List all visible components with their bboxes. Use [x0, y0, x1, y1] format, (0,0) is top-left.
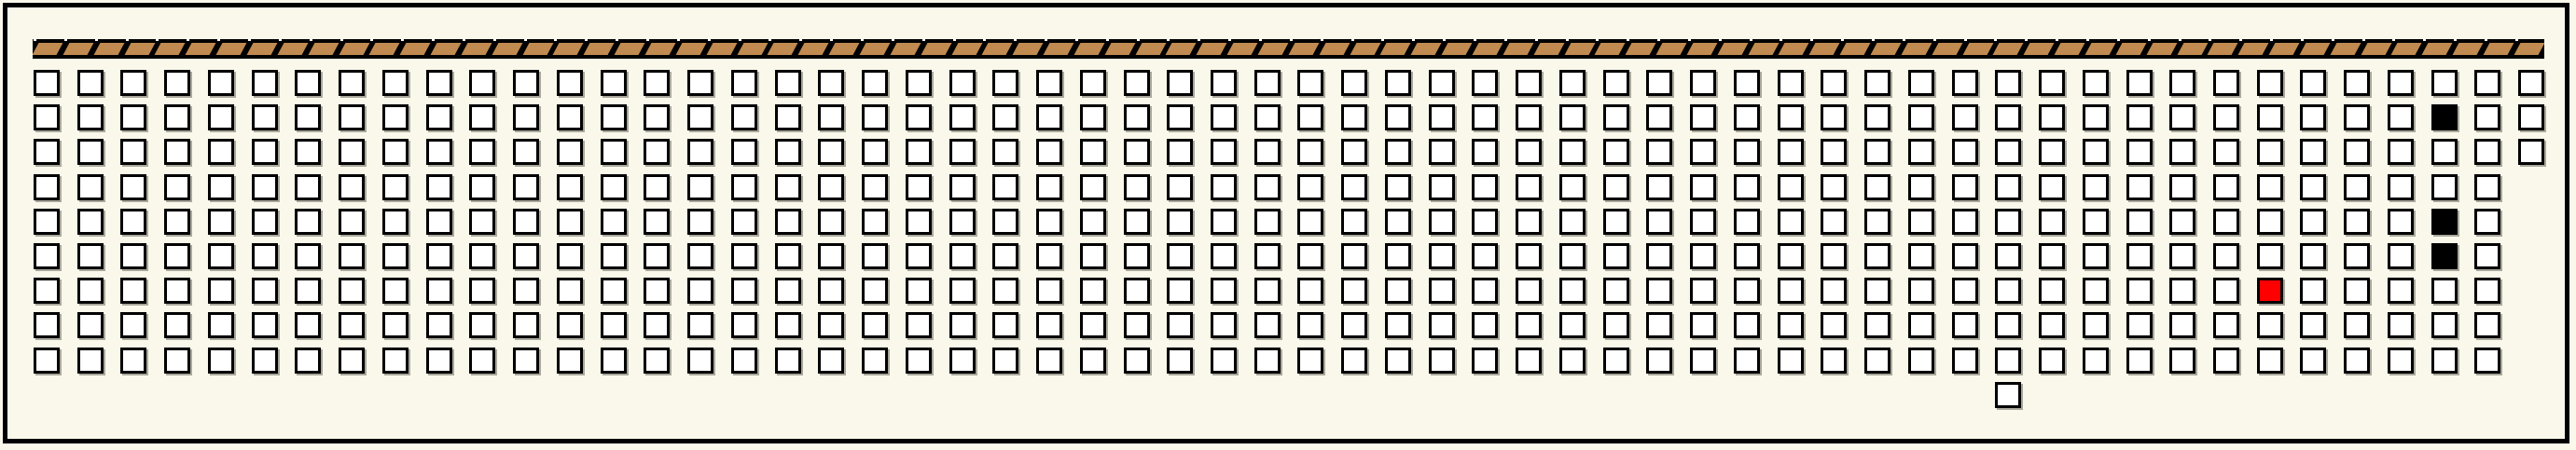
grid-cell[interactable]	[1864, 139, 1890, 165]
grid-cell[interactable]	[1995, 312, 2021, 338]
grid-cell[interactable]	[1778, 104, 1804, 130]
grid-cell[interactable]	[77, 348, 104, 374]
grid-cell[interactable]	[164, 243, 190, 269]
grid-cell[interactable]	[1603, 278, 1629, 304]
grid-cell[interactable]	[731, 104, 757, 130]
grid-cell[interactable]	[2300, 278, 2326, 304]
grid-cell[interactable]	[2300, 174, 2326, 200]
grid-cell[interactable]	[1864, 278, 1890, 304]
grid-cell[interactable]	[1036, 209, 1062, 235]
grid-cell[interactable]	[949, 312, 976, 338]
grid-cell[interactable]	[513, 348, 539, 374]
grid-cell[interactable]	[775, 209, 801, 235]
grid-cell[interactable]	[1908, 312, 1934, 338]
grid-cell[interactable]	[1603, 209, 1629, 235]
grid-cell[interactable]	[775, 104, 801, 130]
grid-cell[interactable]	[208, 243, 234, 269]
grid-cell[interactable]	[1864, 312, 1890, 338]
grid-cell[interactable]	[775, 243, 801, 269]
grid-cell[interactable]	[2083, 278, 2109, 304]
grid-cell[interactable]	[252, 174, 278, 200]
grid-cell[interactable]	[906, 70, 932, 96]
grid-cell[interactable]	[2213, 243, 2239, 269]
grid-cell[interactable]	[2474, 174, 2500, 200]
grid-cell[interactable]	[1341, 243, 1367, 269]
grid-cell[interactable]	[818, 209, 844, 235]
grid-cell[interactable]	[1559, 209, 1586, 235]
grid-cell[interactable]	[1429, 70, 1455, 96]
grid-cell[interactable]	[2213, 278, 2239, 304]
grid-cell[interactable]	[120, 278, 146, 304]
grid-cell[interactable]	[2126, 278, 2153, 304]
grid-cell[interactable]	[1908, 104, 1934, 130]
grid-cell[interactable]	[1385, 312, 1411, 338]
grid-cell[interactable]	[34, 243, 60, 269]
grid-cell[interactable]	[644, 70, 670, 96]
grid-cell[interactable]	[1603, 139, 1629, 165]
grid-cell[interactable]	[906, 243, 932, 269]
grid-cell[interactable]	[295, 104, 321, 130]
grid-cell[interactable]	[469, 70, 495, 96]
grid-cell[interactable]	[164, 104, 190, 130]
grid-cell[interactable]	[34, 209, 60, 235]
grid-cell[interactable]	[906, 278, 932, 304]
grid-cell[interactable]	[513, 312, 539, 338]
grid-cell[interactable]	[1472, 278, 1498, 304]
grid-cell[interactable]	[208, 70, 234, 96]
grid-cell[interactable]	[992, 312, 1018, 338]
grid-cell[interactable]	[992, 174, 1018, 200]
grid-cell[interactable]	[862, 348, 888, 374]
grid-cell[interactable]	[1734, 70, 1760, 96]
grid-cell[interactable]	[601, 174, 627, 200]
grid-cell[interactable]	[1124, 348, 1150, 374]
grid-cell[interactable]	[1646, 70, 1672, 96]
grid-cell[interactable]	[601, 104, 627, 130]
grid-cell[interactable]	[1036, 104, 1062, 130]
grid-cell[interactable]	[1254, 243, 1281, 269]
grid-cell[interactable]	[1603, 312, 1629, 338]
grid-cell[interactable]	[2474, 209, 2500, 235]
grid-cell[interactable]	[557, 312, 583, 338]
grid-cell[interactable]	[906, 139, 932, 165]
grid-cell[interactable]	[426, 243, 452, 269]
grid-cell[interactable]	[252, 312, 278, 338]
grid-cell[interactable]	[1690, 348, 1716, 374]
grid-cell[interactable]	[644, 348, 670, 374]
grid-cell[interactable]	[1908, 174, 1934, 200]
grid-cell[interactable]	[601, 278, 627, 304]
grid-cell[interactable]	[949, 70, 976, 96]
grid-cell[interactable]	[1297, 104, 1323, 130]
grid-cell[interactable]	[862, 70, 888, 96]
grid-cell[interactable]	[862, 209, 888, 235]
grid-cell[interactable]	[2126, 312, 2153, 338]
grid-cell[interactable]	[2213, 209, 2239, 235]
grid-cell[interactable]	[1952, 348, 1978, 374]
grid-cell[interactable]	[426, 209, 452, 235]
grid-cell[interactable]	[2126, 174, 2153, 200]
grid-cell[interactable]	[2300, 70, 2326, 96]
grid-cell[interactable]	[1952, 278, 1978, 304]
grid-cell[interactable]	[382, 348, 409, 374]
grid-cell[interactable]	[1734, 174, 1760, 200]
grid-cell[interactable]	[1516, 70, 1542, 96]
grid-cell[interactable]	[1211, 174, 1237, 200]
grid-cell[interactable]	[2344, 243, 2370, 269]
grid-cell[interactable]	[2039, 104, 2065, 130]
grid-cell[interactable]	[1646, 139, 1672, 165]
grid-cell[interactable]	[1036, 278, 1062, 304]
grid-cell[interactable]	[339, 312, 365, 338]
grid-cell[interactable]	[1734, 312, 1760, 338]
grid-cell[interactable]	[1864, 104, 1890, 130]
grid-cell[interactable]	[1603, 174, 1629, 200]
grid-cell[interactable]	[906, 312, 932, 338]
grid-cell[interactable]	[1646, 243, 1672, 269]
grid-cell[interactable]	[1472, 243, 1498, 269]
grid-cell[interactable]	[687, 174, 713, 200]
grid-cell[interactable]	[1908, 348, 1934, 374]
grid-cell[interactable]	[339, 278, 365, 304]
grid-cell[interactable]	[775, 278, 801, 304]
grid-cell[interactable]	[77, 312, 104, 338]
grid-cell[interactable]	[1167, 348, 1193, 374]
grid-cell[interactable]	[1690, 104, 1716, 130]
grid-cell[interactable]	[818, 70, 844, 96]
grid-cell[interactable]	[775, 174, 801, 200]
grid-cell[interactable]	[1952, 312, 1978, 338]
grid-cell[interactable]	[1429, 278, 1455, 304]
grid-cell[interactable]	[1995, 104, 2021, 130]
grid-cell[interactable]	[644, 139, 670, 165]
grid-cell[interactable]	[1821, 174, 1847, 200]
grid-cell[interactable]	[2431, 209, 2458, 235]
grid-cell[interactable]	[426, 70, 452, 96]
grid-cell[interactable]	[818, 278, 844, 304]
grid-cell[interactable]	[1821, 278, 1847, 304]
grid-cell[interactable]	[1211, 70, 1237, 96]
grid-cell[interactable]	[1341, 312, 1367, 338]
grid-cell[interactable]	[1211, 104, 1237, 130]
grid-cell[interactable]	[1341, 139, 1367, 165]
grid-cell[interactable]	[557, 70, 583, 96]
grid-cell[interactable]	[2039, 278, 2065, 304]
grid-cell[interactable]	[2213, 348, 2239, 374]
grid-cell[interactable]	[34, 70, 60, 96]
grid-cell[interactable]	[1472, 104, 1498, 130]
grid-cell[interactable]	[1254, 139, 1281, 165]
grid-cell[interactable]	[949, 243, 976, 269]
grid-cell[interactable]	[2257, 312, 2283, 338]
grid-cell[interactable]	[992, 278, 1018, 304]
grid-cell[interactable]	[1864, 348, 1890, 374]
grid-cell[interactable]	[469, 139, 495, 165]
grid-cell[interactable]	[513, 104, 539, 130]
grid-cell[interactable]	[252, 104, 278, 130]
grid-cell[interactable]	[557, 209, 583, 235]
grid-cell[interactable]	[2039, 70, 2065, 96]
grid-cell[interactable]	[2474, 243, 2500, 269]
grid-cell[interactable]	[1385, 70, 1411, 96]
grid-cell[interactable]	[1341, 104, 1367, 130]
grid-cell[interactable]	[382, 174, 409, 200]
grid-cell[interactable]	[2083, 348, 2109, 374]
grid-cell[interactable]	[2300, 139, 2326, 165]
grid-cell[interactable]	[775, 348, 801, 374]
grid-cell[interactable]	[1080, 209, 1106, 235]
grid-cell[interactable]	[2431, 243, 2458, 269]
grid-cell[interactable]	[1908, 209, 1934, 235]
grid-cell[interactable]	[2126, 209, 2153, 235]
grid-cell[interactable]	[1864, 209, 1890, 235]
grid-cell[interactable]	[469, 174, 495, 200]
grid-cell[interactable]	[731, 174, 757, 200]
grid-cell[interactable]	[2169, 312, 2195, 338]
grid-cell[interactable]	[1124, 174, 1150, 200]
grid-cell[interactable]	[513, 278, 539, 304]
grid-cell[interactable]	[1124, 278, 1150, 304]
grid-cell[interactable]	[1690, 139, 1716, 165]
grid-cell[interactable]	[1995, 243, 2021, 269]
grid-cell[interactable]	[2344, 70, 2370, 96]
grid-cell[interactable]	[1080, 312, 1106, 338]
grid-cell[interactable]	[1734, 209, 1760, 235]
grid-cell[interactable]	[2431, 174, 2458, 200]
grid-cell[interactable]	[208, 278, 234, 304]
grid-cell[interactable]	[862, 139, 888, 165]
grid-cell[interactable]	[1472, 348, 1498, 374]
grid-cell[interactable]	[1516, 174, 1542, 200]
grid-cell[interactable]	[1472, 139, 1498, 165]
grid-cell[interactable]	[77, 174, 104, 200]
grid-cell[interactable]	[2257, 70, 2283, 96]
grid-cell[interactable]	[34, 278, 60, 304]
grid-cell[interactable]	[252, 209, 278, 235]
grid-cell[interactable]	[1646, 278, 1672, 304]
grid-cell[interactable]	[2431, 104, 2458, 130]
grid-cell[interactable]	[77, 278, 104, 304]
grid-cell[interactable]	[2474, 348, 2500, 374]
grid-cell[interactable]	[1734, 139, 1760, 165]
grid-cell[interactable]	[513, 139, 539, 165]
grid-cell[interactable]	[1821, 243, 1847, 269]
grid-cell[interactable]	[731, 348, 757, 374]
grid-cell[interactable]	[2300, 312, 2326, 338]
grid-cell[interactable]	[1821, 139, 1847, 165]
grid-cell[interactable]	[2257, 209, 2283, 235]
grid-cell[interactable]	[382, 104, 409, 130]
grid-cell[interactable]	[77, 139, 104, 165]
grid-cell[interactable]	[2431, 70, 2458, 96]
grid-cell[interactable]	[295, 139, 321, 165]
grid-cell[interactable]	[339, 209, 365, 235]
grid-cell[interactable]	[1778, 278, 1804, 304]
grid-cell[interactable]	[2388, 70, 2414, 96]
grid-cell[interactable]	[687, 278, 713, 304]
grid-cell[interactable]	[1211, 209, 1237, 235]
grid-cell[interactable]	[2126, 348, 2153, 374]
grid-cell[interactable]	[1995, 348, 2021, 374]
grid-cell[interactable]	[382, 278, 409, 304]
grid-cell[interactable]	[601, 243, 627, 269]
grid-cell[interactable]	[2388, 209, 2414, 235]
grid-cell[interactable]	[1036, 174, 1062, 200]
grid-cell[interactable]	[2083, 70, 2109, 96]
grid-cell[interactable]	[34, 139, 60, 165]
grid-cell[interactable]	[1341, 174, 1367, 200]
grid-cell[interactable]	[1080, 104, 1106, 130]
grid-cell[interactable]	[252, 139, 278, 165]
grid-cell[interactable]	[2474, 70, 2500, 96]
grid-cell[interactable]	[2083, 104, 2109, 130]
grid-cell[interactable]	[2126, 104, 2153, 130]
grid-cell[interactable]	[295, 209, 321, 235]
grid-cell[interactable]	[2257, 174, 2283, 200]
grid-cell[interactable]	[644, 174, 670, 200]
grid-cell[interactable]	[164, 312, 190, 338]
grid-cell[interactable]	[1559, 139, 1586, 165]
grid-cell[interactable]	[557, 174, 583, 200]
grid-cell[interactable]	[1908, 139, 1934, 165]
grid-cell[interactable]	[1254, 104, 1281, 130]
grid-cell[interactable]	[1167, 70, 1193, 96]
grid-cell[interactable]	[2388, 312, 2414, 338]
grid-cell[interactable]	[687, 209, 713, 235]
grid-cell[interactable]	[1429, 243, 1455, 269]
grid-cell[interactable]	[1734, 104, 1760, 130]
grid-cell[interactable]	[1080, 278, 1106, 304]
grid-cell[interactable]	[164, 348, 190, 374]
grid-cell[interactable]	[731, 243, 757, 269]
grid-cell[interactable]	[818, 243, 844, 269]
grid-cell[interactable]	[949, 174, 976, 200]
grid-cell[interactable]	[1559, 278, 1586, 304]
grid-cell[interactable]	[1995, 174, 2021, 200]
grid-cell[interactable]	[1167, 278, 1193, 304]
grid-cell[interactable]	[949, 278, 976, 304]
grid-cell[interactable]	[1167, 243, 1193, 269]
grid-cell[interactable]	[2344, 278, 2370, 304]
grid-cell[interactable]	[644, 312, 670, 338]
grid-cell[interactable]	[2388, 243, 2414, 269]
grid-cell[interactable]	[2431, 348, 2458, 374]
grid-cell[interactable]	[2474, 312, 2500, 338]
grid-cell[interactable]	[339, 348, 365, 374]
grid-cell[interactable]	[2169, 278, 2195, 304]
grid-cell[interactable]	[2431, 139, 2458, 165]
grid-cell[interactable]	[1952, 174, 1978, 200]
grid-cell[interactable]	[120, 139, 146, 165]
grid-cell[interactable]	[1124, 209, 1150, 235]
grid-cell[interactable]	[120, 312, 146, 338]
grid-cell[interactable]	[34, 174, 60, 200]
grid-cell[interactable]	[1429, 348, 1455, 374]
grid-cell[interactable]	[818, 174, 844, 200]
grid-cell[interactable]	[2169, 348, 2195, 374]
grid-cell[interactable]	[1036, 348, 1062, 374]
grid-cell[interactable]	[1734, 243, 1760, 269]
grid-cell[interactable]	[426, 139, 452, 165]
grid-cell[interactable]	[1080, 139, 1106, 165]
grid-cell[interactable]	[1211, 243, 1237, 269]
grid-cell[interactable]	[2257, 278, 2283, 304]
grid-cell[interactable]	[1124, 312, 1150, 338]
grid-cell[interactable]	[2300, 209, 2326, 235]
grid-cell[interactable]	[601, 70, 627, 96]
grid-cell[interactable]	[557, 104, 583, 130]
grid-cell[interactable]	[120, 104, 146, 130]
grid-cell[interactable]	[1559, 312, 1586, 338]
grid-cell[interactable]	[862, 174, 888, 200]
grid-cell[interactable]	[339, 139, 365, 165]
grid-cell[interactable]	[1080, 243, 1106, 269]
grid-cell[interactable]	[1952, 243, 1978, 269]
grid-cell[interactable]	[1864, 243, 1890, 269]
grid-cell[interactable]	[1516, 139, 1542, 165]
grid-cell[interactable]	[120, 348, 146, 374]
grid-cell[interactable]	[2213, 139, 2239, 165]
grid-cell[interactable]	[1646, 348, 1672, 374]
grid-cell[interactable]	[513, 174, 539, 200]
grid-cell[interactable]	[295, 243, 321, 269]
grid-cell[interactable]	[1297, 278, 1323, 304]
grid-cell[interactable]	[1429, 139, 1455, 165]
grid-cell[interactable]	[818, 312, 844, 338]
grid-cell[interactable]	[1211, 139, 1237, 165]
grid-cell[interactable]	[644, 278, 670, 304]
grid-cell[interactable]	[34, 312, 60, 338]
grid-cell[interactable]	[382, 243, 409, 269]
grid-cell[interactable]	[906, 348, 932, 374]
grid-cell[interactable]	[557, 243, 583, 269]
grid-cell[interactable]	[1778, 70, 1804, 96]
grid-cell[interactable]	[2388, 278, 2414, 304]
grid-cell[interactable]	[1385, 243, 1411, 269]
grid-cell[interactable]	[2300, 243, 2326, 269]
grid-cell[interactable]	[1297, 70, 1323, 96]
grid-cell[interactable]	[1559, 70, 1586, 96]
grid-cell[interactable]	[2474, 278, 2500, 304]
grid-cell[interactable]	[469, 278, 495, 304]
grid-cell[interactable]	[1429, 174, 1455, 200]
grid-cell[interactable]	[1516, 312, 1542, 338]
grid-cell[interactable]	[2344, 209, 2370, 235]
grid-cell[interactable]	[469, 209, 495, 235]
grid-cell[interactable]	[1341, 278, 1367, 304]
grid-cell[interactable]	[34, 104, 60, 130]
grid-cell[interactable]	[2083, 312, 2109, 338]
grid-cell[interactable]	[2388, 348, 2414, 374]
grid-cell[interactable]	[1821, 348, 1847, 374]
grid-cell[interactable]	[1341, 70, 1367, 96]
grid-cell[interactable]	[513, 70, 539, 96]
grid-cell[interactable]	[2039, 348, 2065, 374]
grid-cell[interactable]	[2388, 174, 2414, 200]
grid-cell[interactable]	[2344, 312, 2370, 338]
grid-cell[interactable]	[1080, 70, 1106, 96]
grid-cell[interactable]	[1385, 348, 1411, 374]
grid-cell[interactable]	[339, 104, 365, 130]
grid-cell[interactable]	[426, 312, 452, 338]
grid-cell[interactable]	[687, 139, 713, 165]
grid-cell[interactable]	[2257, 243, 2283, 269]
grid-cell[interactable]	[120, 209, 146, 235]
grid-cell[interactable]	[1646, 104, 1672, 130]
grid-cell[interactable]	[2083, 243, 2109, 269]
grid-cell[interactable]	[1036, 243, 1062, 269]
grid-cell[interactable]	[2344, 174, 2370, 200]
